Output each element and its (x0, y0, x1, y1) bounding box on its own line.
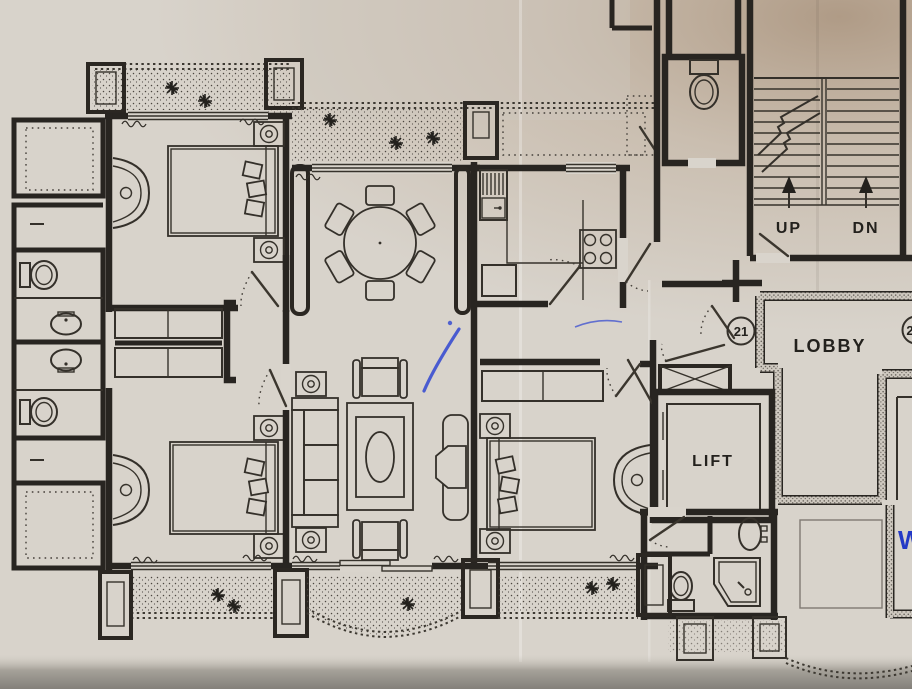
lobby-label: LOBBY (794, 336, 867, 356)
unit-number: 21 (734, 324, 748, 339)
lift-label: LIFT (692, 453, 734, 470)
pillow (498, 497, 517, 514)
unit-number-partial: 2 (906, 323, 912, 338)
floor-plan-photo: LOBBY 21 2 LIFT (0, 0, 912, 689)
floor-plan-drawing: LOBBY 21 2 LIFT (0, 0, 912, 689)
pillow (247, 181, 266, 198)
stairs-up-label: UP (776, 220, 802, 237)
tv-icon (436, 446, 466, 488)
plant-icon (165, 81, 179, 95)
stairs-down-label: DN (852, 220, 879, 237)
pillow (245, 200, 264, 217)
table-edge (0, 655, 912, 689)
handwritten-note: W (898, 525, 912, 555)
pillow (247, 499, 266, 516)
pillow (500, 477, 519, 494)
pillow (496, 456, 516, 473)
pillow (245, 458, 265, 475)
pillow (249, 479, 268, 496)
plant-icon (198, 94, 212, 108)
pillow (243, 161, 263, 178)
